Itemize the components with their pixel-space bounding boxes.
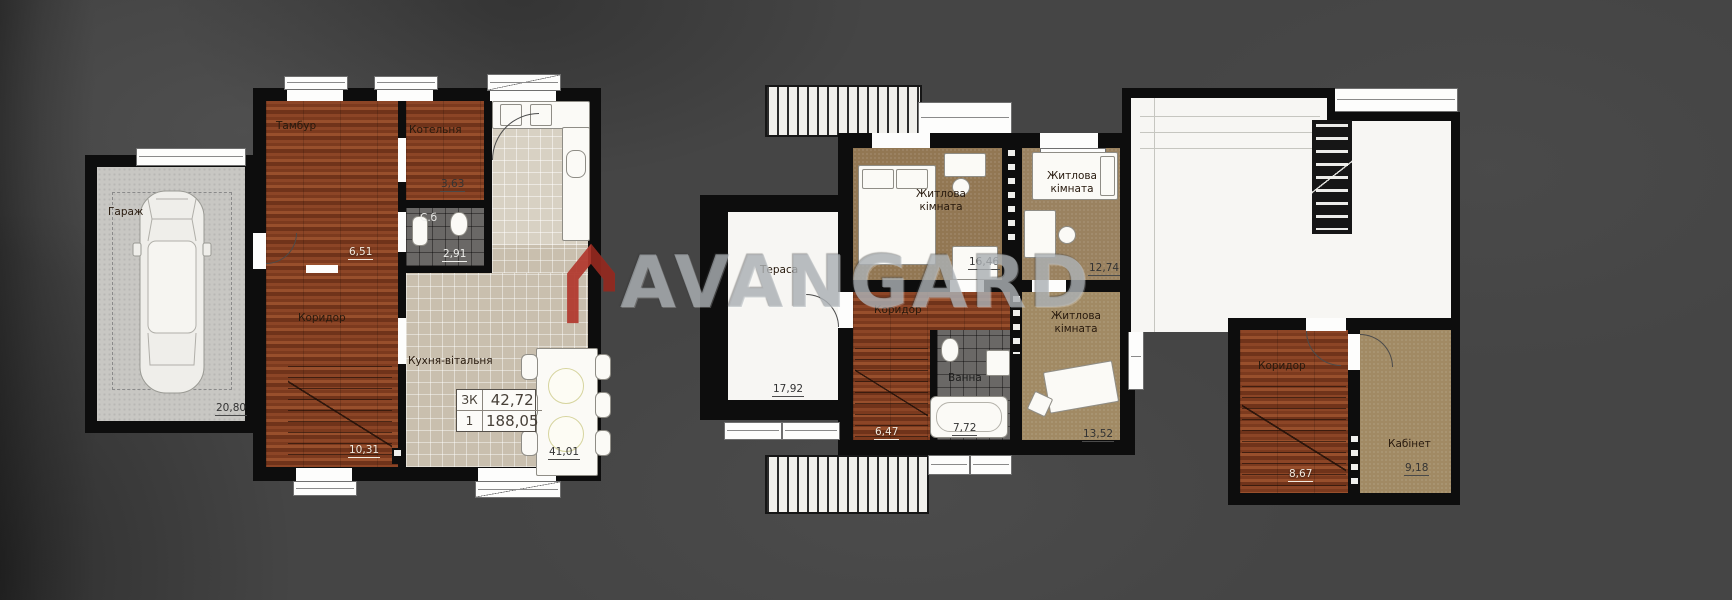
terrace-wall-top [728, 195, 838, 212]
balcony-hatch-top [765, 85, 922, 137]
chair [595, 430, 611, 456]
attic-floor [1131, 98, 1327, 332]
sink-right [566, 150, 586, 178]
terrace-wall-bottom [700, 400, 838, 420]
eave-strip [1334, 88, 1458, 112]
tambour-corridor-door [306, 265, 338, 273]
stairs-cut-line [855, 348, 928, 438]
boiler-door [398, 138, 406, 182]
room-label-corridor-f1: Коридор [298, 312, 346, 325]
room-area-corridor-f2: 6,47 [874, 426, 899, 440]
window-sill [293, 481, 357, 496]
room-label-wc: С.б [420, 212, 437, 225]
window [1128, 328, 1144, 390]
room-area-boiler: 3,63 [440, 178, 465, 192]
chair [595, 354, 611, 380]
pillow [862, 169, 894, 189]
balcony-hatch-bottom [765, 455, 929, 514]
desk [944, 153, 986, 177]
window-sill [475, 481, 561, 498]
window-band-top [918, 102, 1012, 134]
attic-corridor-door [1306, 318, 1346, 331]
room-area-bath: 7,72 [952, 422, 977, 436]
window-sill [928, 455, 970, 475]
vent-shaft [394, 450, 401, 462]
vent-shaft [1351, 436, 1358, 488]
room-label-kitchen: Кухня-вітальня [408, 355, 493, 368]
attic-wall-top-left [1122, 88, 1334, 98]
window-sill [284, 76, 348, 90]
room-area-bedroom2: 12,74 [1088, 262, 1120, 276]
pillow [896, 169, 928, 189]
vent-shaft [1008, 150, 1015, 246]
garage-door [136, 148, 246, 166]
window [1040, 133, 1098, 148]
window-sill [970, 455, 1012, 475]
room-area-corridor-f3: 8,67 [1288, 468, 1313, 482]
room-area-office: 9,18 [1404, 462, 1429, 476]
window-sill [487, 74, 561, 91]
counter-right [562, 127, 590, 241]
room-area-kitchen: 41,01 [548, 446, 580, 460]
floor-plans-image: Гараж 20,80 [0, 0, 1732, 600]
room-area-bedroom3: 13,52 [1082, 428, 1114, 442]
attic-wall-left [1122, 88, 1131, 332]
room-label-bath: Ванна [948, 372, 982, 385]
roof-slope-line [1154, 98, 1155, 332]
window [872, 133, 930, 148]
room-area-garage: 20,80 [215, 402, 247, 416]
roof-slope-line [1140, 132, 1320, 133]
room-label-tambour: Тамбур [276, 120, 316, 133]
window-sill [374, 76, 438, 90]
info-rooms-code: ЗК [457, 390, 483, 411]
corridor-kitchen-opening [398, 318, 406, 364]
info-floors: 1 [457, 411, 483, 431]
room-label-bedroom1: Житлова кімната [902, 188, 980, 213]
avangard-logo-icon [562, 237, 620, 325]
watermark-text: AVANGARD [620, 240, 1092, 324]
chair [521, 354, 538, 380]
plate [548, 368, 584, 404]
room-label-boiler: Котельня [409, 124, 462, 137]
room-area-tambour: 6,51 [348, 246, 373, 260]
window [296, 468, 352, 481]
roof-slope-line [1140, 116, 1320, 117]
room-area-terrace: 17,92 [772, 383, 804, 397]
chair [521, 430, 538, 456]
toilet [450, 212, 468, 236]
corridor-office-door [1348, 334, 1360, 370]
toilet [941, 338, 959, 362]
washing-machine [986, 350, 1010, 376]
chair [595, 392, 611, 418]
room-label-office: Кабінет [1388, 438, 1431, 451]
roof-slope-line [1140, 148, 1320, 149]
wc-door [398, 212, 406, 252]
room-label-bedroom2: Житлова кімната [1036, 170, 1108, 195]
info-living-area: 42,72 [483, 390, 542, 411]
room-area-corridor-f1: 10,31 [348, 444, 380, 458]
room-area-wc: 2,91 [442, 248, 467, 262]
room-label-corridor-f3: Коридор [1258, 360, 1306, 373]
garage-tambour-door [253, 233, 266, 269]
window-sill [782, 422, 840, 440]
room-label-garage: Гараж [108, 206, 143, 219]
apartment-info-table: ЗК 42,72 1 188,05 [456, 389, 536, 432]
ladder-brace [1312, 120, 1352, 234]
info-total-area: 188,05 [483, 411, 542, 431]
window-sill [724, 422, 782, 440]
